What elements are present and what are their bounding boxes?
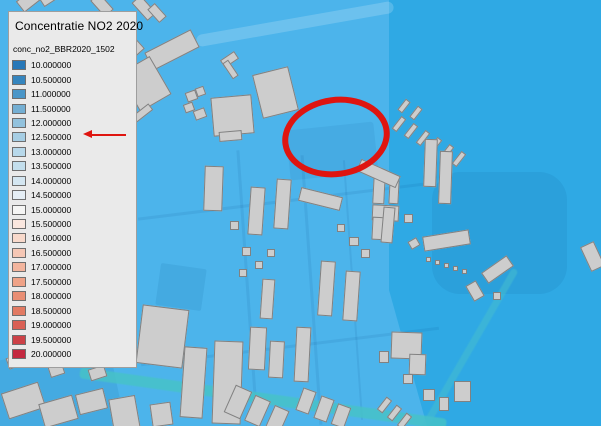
legend-value-label: 14.000000 [31, 176, 71, 186]
legend-value-label: 17.500000 [31, 277, 71, 287]
legend-entry: 17.500000 [12, 275, 134, 289]
legend-entry: 12.000000 [12, 116, 134, 130]
legend-value-label: 19.000000 [31, 320, 71, 330]
legend-value-label: 13.000000 [31, 147, 71, 157]
legend-color-swatch [12, 205, 26, 215]
building-footprint [136, 304, 190, 368]
building-footprint [361, 249, 370, 258]
legend-value-label: 15.500000 [31, 219, 71, 229]
legend-value-label: 16.000000 [31, 233, 71, 243]
legend-value-label: 12.000000 [31, 118, 71, 128]
building-footprint [268, 341, 285, 379]
building-footprint [255, 261, 263, 269]
building-footprint [439, 397, 449, 411]
legend-color-swatch [12, 320, 26, 330]
building-footprint [438, 151, 453, 204]
legend-color-swatch [12, 233, 26, 243]
legend-entry: 18.000000 [12, 289, 134, 303]
legend-color-swatch [12, 147, 26, 157]
concentration-zone [155, 263, 206, 311]
gis-map-viewport[interactable]: Concentratie NO2 2020 conc_no2_BBR2020_1… [0, 0, 601, 426]
building-footprint [379, 351, 389, 363]
legend-value-label: 16.500000 [31, 248, 71, 258]
legend-entry: 15.500000 [12, 217, 134, 231]
legend-value-label: 18.500000 [31, 306, 71, 316]
building-footprint [267, 249, 275, 257]
building-footprint [349, 237, 359, 246]
legend-value-label: 20.000000 [31, 349, 71, 359]
building-footprint [409, 354, 427, 376]
building-footprint [150, 402, 174, 426]
legend-value-label: 19.500000 [31, 335, 71, 345]
legend-color-swatch [12, 335, 26, 345]
legend-value-label: 14.500000 [31, 190, 71, 200]
legend-entry: 15.000000 [12, 202, 134, 216]
legend-color-swatch [12, 190, 26, 200]
legend-panel: Concentratie NO2 2020 conc_no2_BBR2020_1… [8, 11, 137, 368]
legend-entry: 13.000000 [12, 145, 134, 159]
building-footprint [426, 257, 431, 262]
building-footprint [294, 327, 312, 383]
building-footprint [242, 247, 251, 256]
legend-title: Concentratie NO2 2020 [15, 19, 143, 33]
building-footprint [444, 263, 449, 268]
legend-layer-name: conc_no2_BBR2020_1502 [13, 44, 115, 54]
legend-entry: 10.000000 [12, 58, 134, 72]
legend-entry: 19.000000 [12, 318, 134, 332]
building-footprint [404, 214, 413, 223]
legend-color-swatch [12, 291, 26, 301]
legend-color-swatch [12, 104, 26, 114]
legend-color-swatch [12, 176, 26, 186]
legend-value-label: 10.000000 [31, 60, 71, 70]
legend-color-swatch [12, 60, 26, 70]
legend-entry: 14.500000 [12, 188, 134, 202]
legend-value-label: 11.000000 [31, 89, 71, 99]
legend-value-label: 18.000000 [31, 291, 71, 301]
legend-entry: 20.000000 [12, 347, 134, 361]
legend-entry: 18.500000 [12, 303, 134, 317]
legend-entry: 14.000000 [12, 174, 134, 188]
building-footprint [493, 292, 501, 300]
legend-entries: 10.00000010.50000011.00000011.50000012.0… [12, 58, 134, 361]
legend-entry: 10.500000 [12, 72, 134, 86]
legend-value-label: 17.000000 [31, 262, 71, 272]
legend-color-swatch [12, 248, 26, 258]
legend-entry: 16.000000 [12, 231, 134, 245]
legend-color-swatch [12, 277, 26, 287]
legend-color-swatch [12, 118, 26, 128]
legend-color-swatch [12, 349, 26, 359]
building-footprint [453, 266, 458, 271]
legend-color-swatch [12, 219, 26, 229]
legend-color-swatch [12, 89, 26, 99]
legend-value-label: 10.500000 [31, 75, 71, 85]
legend-color-swatch [12, 161, 26, 171]
red-arrow-shaft [90, 134, 126, 136]
legend-entry: 16.500000 [12, 246, 134, 260]
building-footprint [403, 374, 413, 384]
building-footprint [454, 381, 471, 402]
legend-color-swatch [12, 132, 26, 142]
building-footprint [239, 269, 247, 277]
building-footprint [462, 269, 467, 274]
building-footprint [203, 166, 224, 212]
building-footprint [435, 260, 440, 265]
building-footprint [230, 221, 239, 230]
building-footprint [423, 389, 435, 401]
legend-color-swatch [12, 262, 26, 272]
legend-entry: 17.000000 [12, 260, 134, 274]
building-footprint [337, 224, 345, 232]
legend-entry: 19.500000 [12, 332, 134, 346]
legend-value-label: 13.500000 [31, 161, 71, 171]
legend-value-label: 15.000000 [31, 205, 71, 215]
building-footprint [248, 327, 267, 371]
red-arrow-annotation [83, 130, 127, 139]
building-footprint [180, 346, 208, 418]
building-footprint [219, 130, 243, 142]
building-footprint [260, 279, 276, 320]
legend-color-swatch [12, 75, 26, 85]
legend-value-label: 11.500000 [31, 104, 71, 114]
building-footprint [423, 139, 438, 187]
legend-entry: 11.000000 [12, 87, 134, 101]
legend-entry: 11.500000 [12, 101, 134, 115]
legend-value-label: 12.500000 [31, 132, 71, 142]
legend-entry: 13.500000 [12, 159, 134, 173]
legend-color-swatch [12, 306, 26, 316]
